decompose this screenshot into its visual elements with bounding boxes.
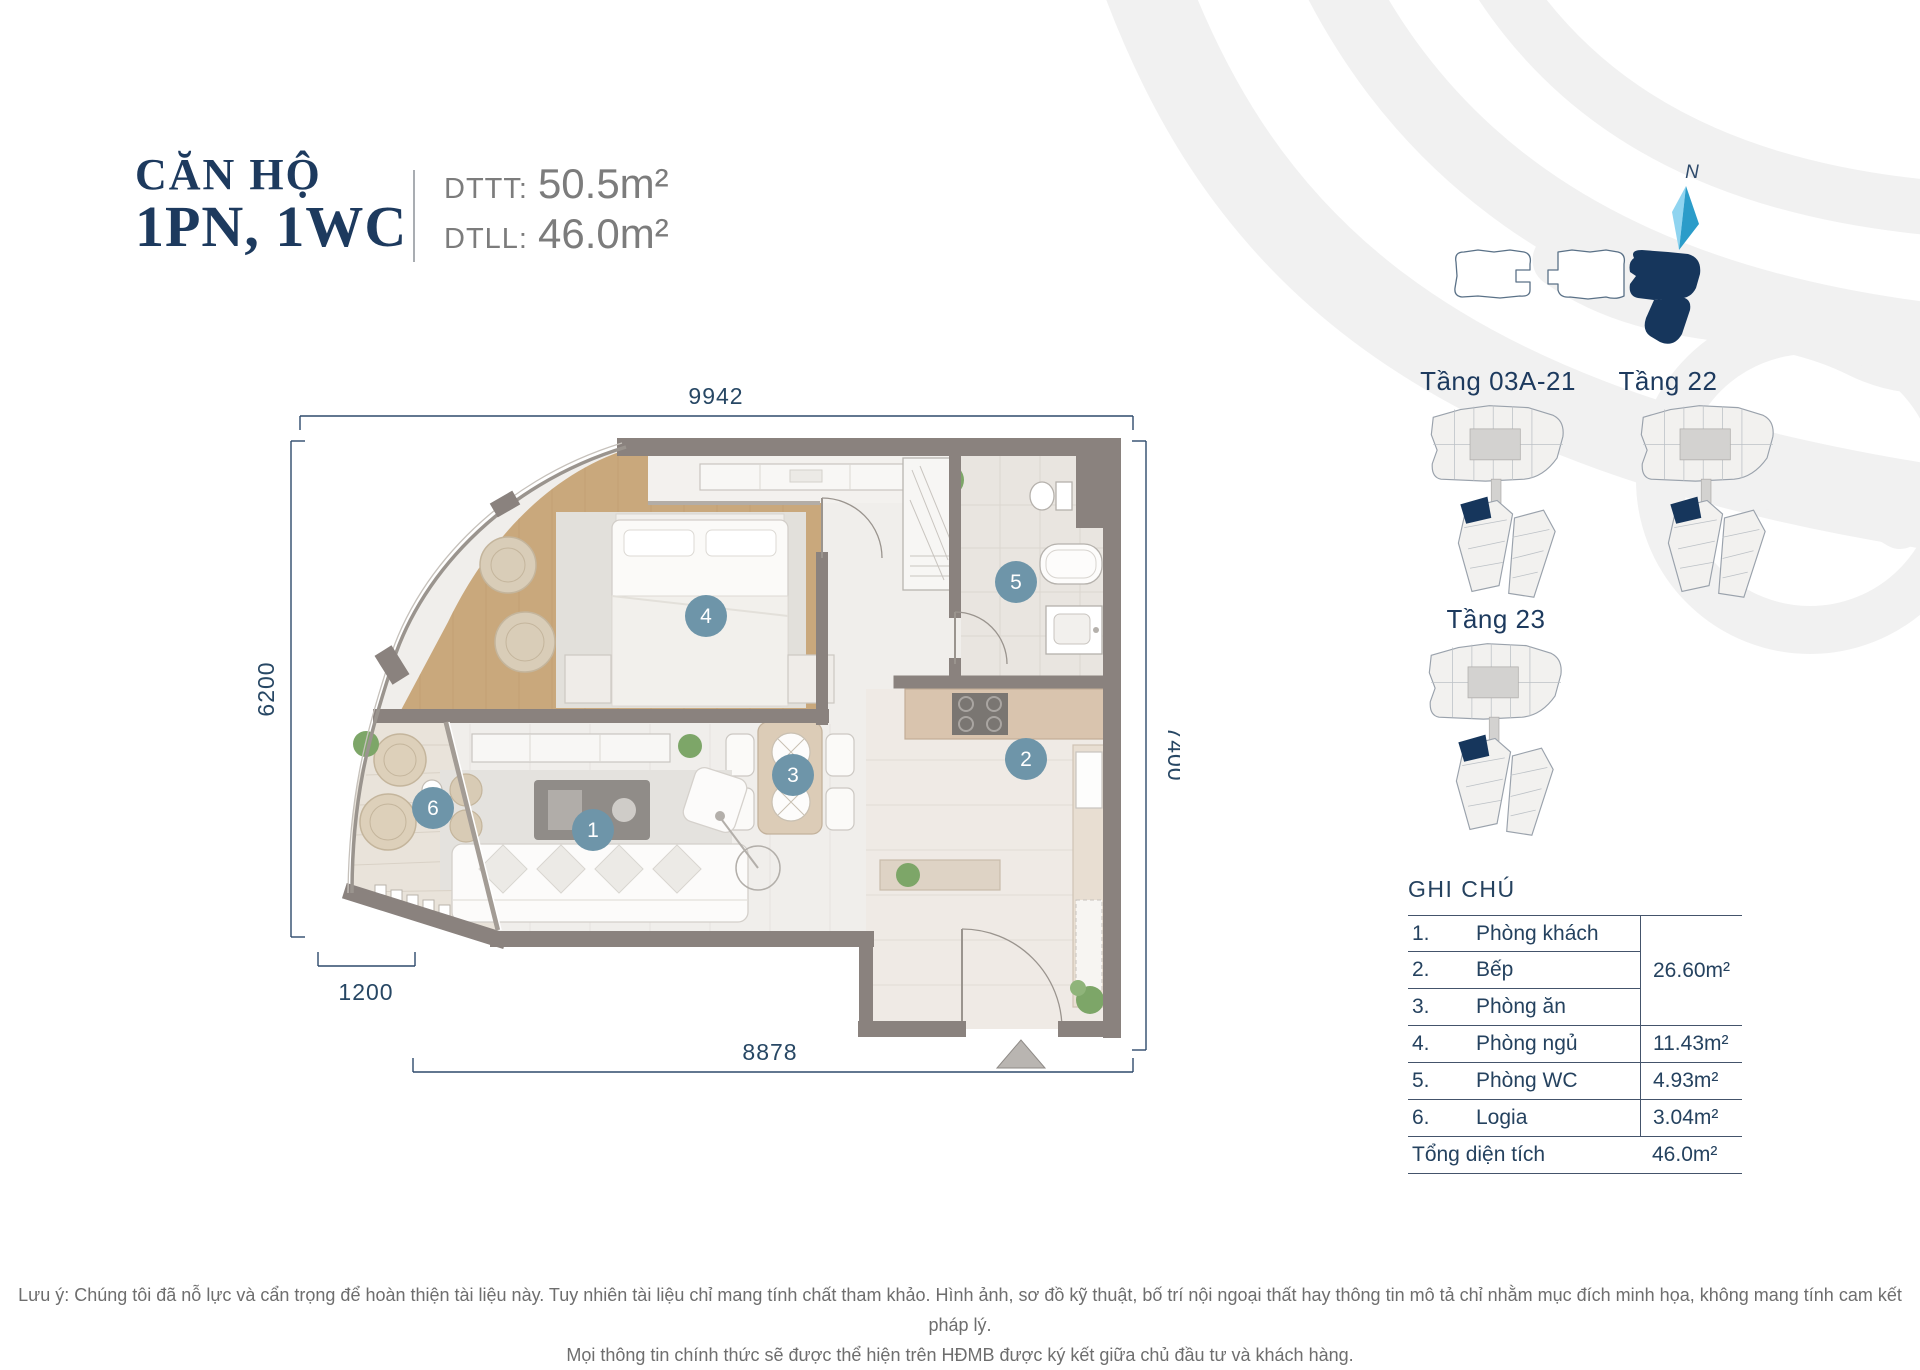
neighbor-building-outline: [1455, 250, 1625, 299]
dimension-top: [300, 416, 1133, 430]
keyplan-label-floor-22: Tầng 22: [1588, 366, 1748, 397]
bathroom-wall-chunk: [1076, 456, 1104, 528]
dimension-bottom-left: [318, 952, 415, 966]
room-marker-1: 1: [572, 809, 614, 851]
bathtub: [1040, 544, 1102, 584]
floor-plan: 9942 6200 7400 1200 8878 1 2 3 4: [230, 380, 1180, 1080]
rattan-pouf: [480, 537, 536, 593]
svg-text:2: 2: [1020, 748, 1032, 771]
dimension-bottom-left-label: 1200: [338, 979, 393, 1005]
room-marker-4: 4: [685, 595, 727, 637]
kitchen-counter: [905, 689, 1112, 739]
title-divider: [413, 170, 415, 262]
room-marker-2: 2: [1005, 738, 1047, 780]
apartment-title: CĂN HỘ 1PN, 1WC: [135, 152, 435, 256]
current-building-silhouette: [1630, 250, 1701, 344]
dimension-top-label: 9942: [688, 383, 743, 409]
legend-title: GHI CHÚ: [1408, 876, 1516, 903]
dimension-left-label: 6200: [253, 661, 279, 716]
svg-text:1: 1: [587, 819, 599, 842]
dimension-bottom-label: 8878: [742, 1039, 797, 1065]
compass-icon: [1672, 186, 1699, 250]
dttt-label: DTTT:: [444, 173, 528, 206]
appliance-cabinet: [1076, 900, 1102, 990]
legend-row-no: 3.: [1408, 989, 1456, 1026]
legend-row-label: Phòng ăn: [1456, 989, 1640, 1026]
legend-row-area: 11.43m²: [1640, 1026, 1742, 1063]
area-summary: DTTT: 50.5m² DTLL: 46.0m²: [444, 160, 669, 260]
svg-text:6: 6: [427, 797, 439, 820]
site-plan: N: [1400, 130, 1920, 360]
area-row-dttt: DTTT: 50.5m²: [444, 160, 669, 210]
dtll-label: DTLL:: [444, 223, 528, 256]
legend-row-label: Logia: [1456, 1100, 1640, 1137]
legend-row-no: 2.: [1408, 952, 1456, 989]
dimension-left: [291, 441, 305, 937]
disclaimer-line-2: Mọi thông tin chính thức sẽ được thể hiệ…: [0, 1340, 1920, 1370]
lounge-chair: [374, 734, 426, 786]
legend-row-area: 3.04m²: [1640, 1100, 1742, 1137]
apartment-type-label: CĂN HỘ: [135, 152, 435, 198]
legend-row-no: 4.: [1408, 1026, 1456, 1063]
room-marker-5: 5: [995, 561, 1037, 603]
legend-row-area: 4.93m²: [1640, 1063, 1742, 1100]
keyplan-label-floor-23: Tầng 23: [1406, 604, 1586, 635]
dtll-value: 46.0m²: [538, 210, 669, 258]
svg-text:4: 4: [700, 605, 712, 628]
legend-table: 1. Phòng khách 26.60m² 2. Bếp 3. Phòng ă…: [1408, 915, 1742, 1174]
toilet: [1030, 482, 1072, 510]
area-row-dtll: DTLL: 46.0m²: [444, 210, 669, 260]
stove: [952, 693, 1008, 735]
legend-row-no: 6.: [1408, 1100, 1456, 1137]
dttt-value: 50.5m²: [538, 160, 669, 208]
disclaimer-line-1: Lưu ý: Chúng tôi đã nỗ lực và cẩn trọng …: [0, 1280, 1920, 1340]
legend-total-label: Tổng diện tích: [1408, 1137, 1640, 1174]
kitchen-bench: [880, 860, 1000, 890]
legend-total-value: 46.0m²: [1640, 1137, 1742, 1174]
legend-row-label: Bếp: [1456, 952, 1640, 989]
legend-row-label: Phòng WC: [1456, 1063, 1640, 1100]
compass-north-label: N: [1685, 162, 1699, 183]
console-table: [700, 464, 910, 490]
apartment-config-label: 1PN, 1WC: [135, 198, 435, 256]
lounge-chair: [360, 794, 416, 850]
legend-row-no: 5.: [1408, 1063, 1456, 1100]
keyplan-floor-23: [1424, 634, 1572, 842]
legend-row-label: Phòng khách: [1456, 915, 1640, 952]
dimension-right-label: 7400: [1163, 726, 1180, 781]
legend-row-label: Phòng ngủ: [1456, 1026, 1640, 1063]
keyplan-label-floor-03a-21: Tầng 03A-21: [1408, 366, 1588, 397]
legend-grouped-area: 26.60m²: [1640, 915, 1742, 1026]
tv-sideboard: [472, 734, 702, 762]
room-marker-6: 6: [412, 787, 454, 829]
room-marker-3: 3: [772, 754, 814, 796]
keyplan-floor-22: [1636, 396, 1784, 604]
dimension-right: [1132, 441, 1146, 1050]
bathroom-sink: [1046, 606, 1102, 654]
svg-text:5: 5: [1010, 571, 1022, 594]
fridge: [1076, 752, 1102, 808]
rattan-chair: [495, 612, 555, 672]
entrance-marker: [997, 1040, 1045, 1068]
dining-chair: [826, 788, 854, 830]
dining-chair: [826, 734, 854, 776]
wardrobe: [903, 458, 957, 590]
dining-chair: [726, 734, 754, 776]
nightstand: [565, 655, 611, 703]
keyplan-floor-03a-21: [1426, 396, 1574, 604]
legend-row-no: 1.: [1408, 915, 1456, 952]
svg-text:3: 3: [787, 764, 799, 787]
